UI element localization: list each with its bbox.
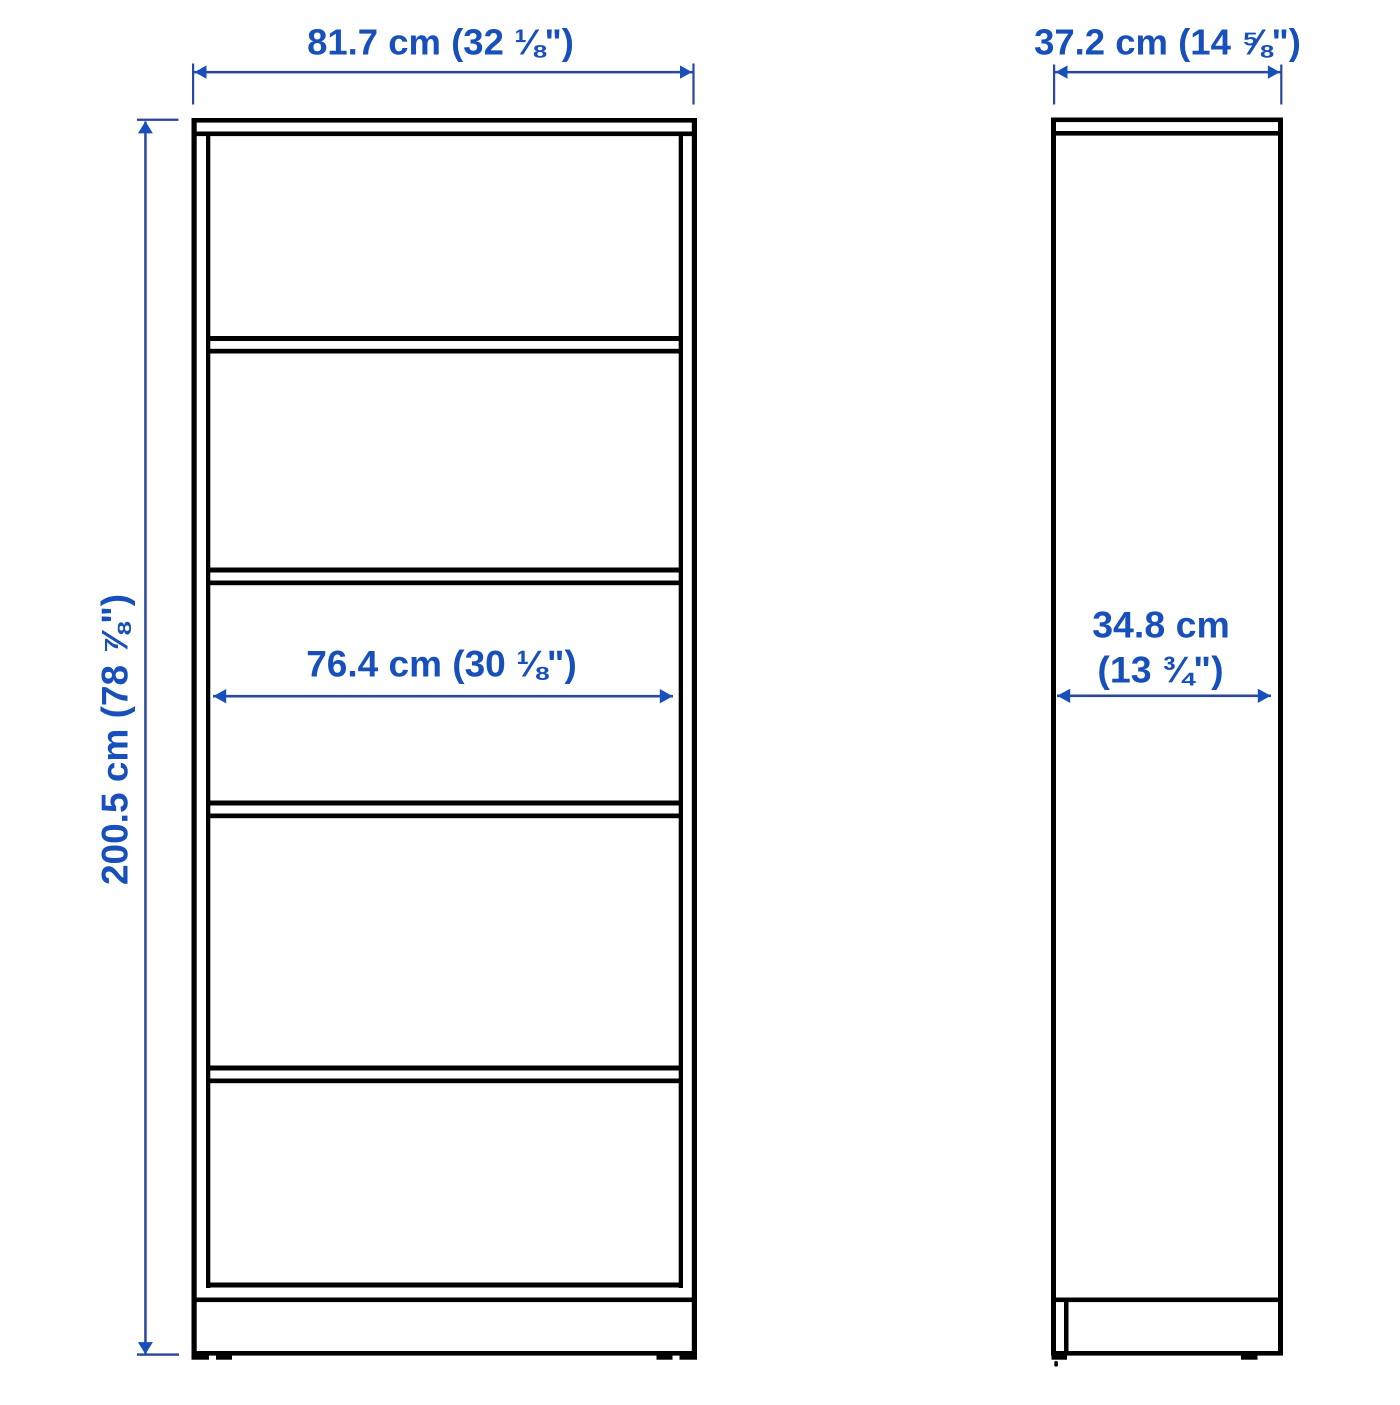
svg-text:37.2 cm (14 ⅝"): 37.2 cm (14 ⅝") (1034, 22, 1301, 63)
svg-text:(13 ¾"): (13 ¾") (1097, 649, 1223, 691)
svg-text:200.5 cm (78 ⅞"): 200.5 cm (78 ⅞") (95, 594, 136, 885)
svg-text:76.4 cm (30 ⅛"): 76.4 cm (30 ⅛") (306, 644, 577, 685)
svg-text:34.8 cm: 34.8 cm (1092, 604, 1230, 646)
svg-text:81.7 cm (32 ⅛"): 81.7 cm (32 ⅛") (307, 22, 574, 63)
